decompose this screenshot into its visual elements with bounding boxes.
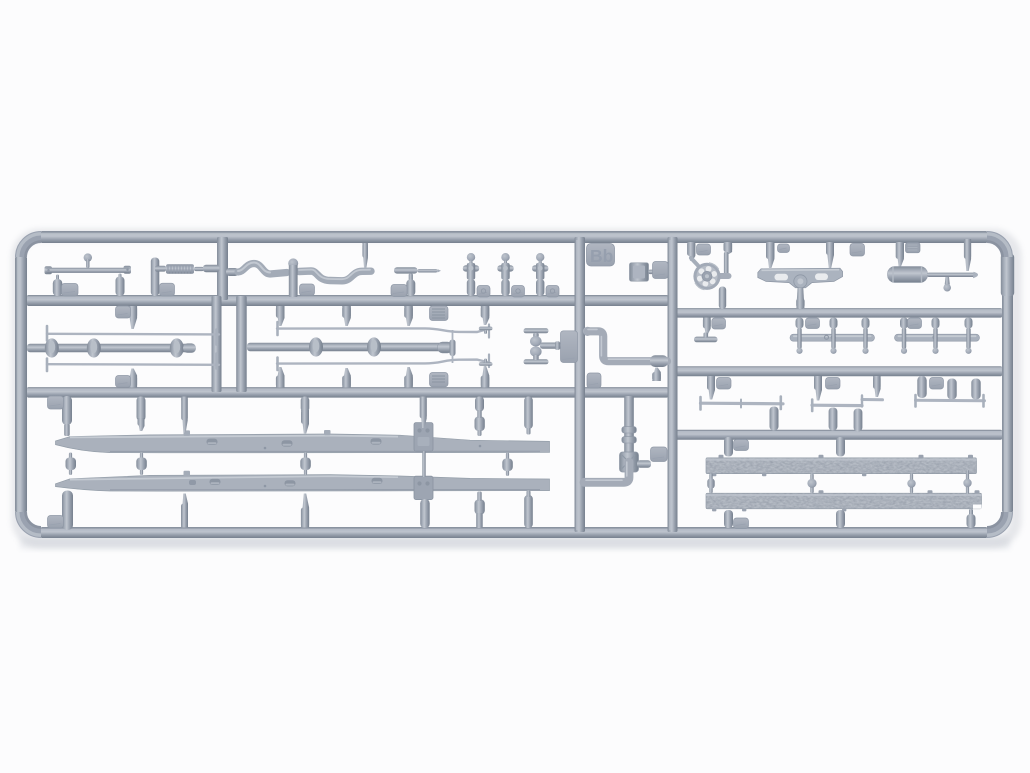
svg-text:Bb: Bb [590, 246, 613, 266]
